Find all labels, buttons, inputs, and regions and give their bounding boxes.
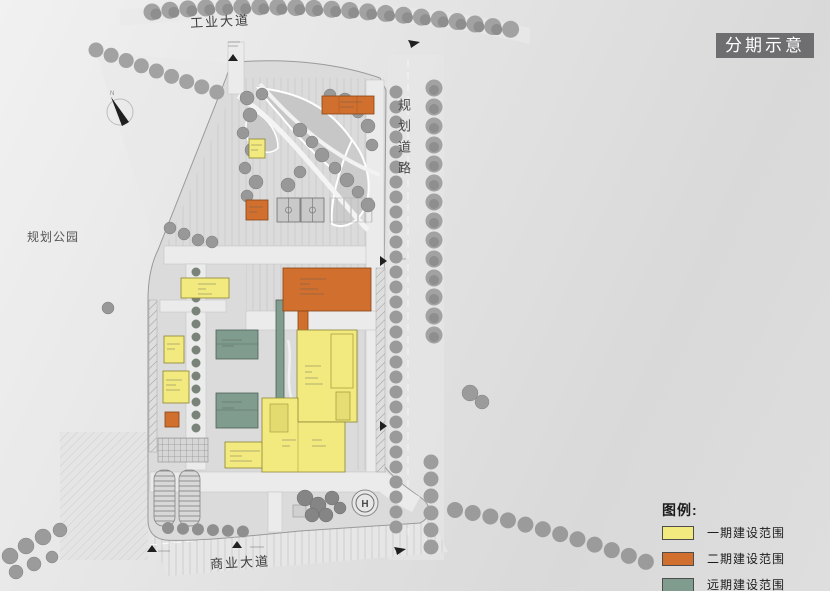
phase3-label: 远期建设范围 <box>707 576 785 591</box>
parking-lot <box>154 438 208 526</box>
plaza-pad <box>293 505 306 517</box>
phase1-label: 一期建设范围 <box>707 524 785 541</box>
phase2-main-block <box>283 268 371 311</box>
west-area-label: 规划公园 <box>27 228 79 245</box>
site-plan-page: H N 工业大道 规划道路 规划公园 商业大道 分期示意 图例: 一期建设范围 … <box>0 0 830 591</box>
phase1-small-west-2 <box>163 371 189 403</box>
south-road-label: 商业大道 <box>210 550 271 572</box>
east-road-label: 规划道路 <box>394 98 413 182</box>
phase2-dormitory-north <box>322 96 374 114</box>
legend-item-phase3: 远期建设范围 <box>662 576 814 591</box>
phase1-small-west-1 <box>164 336 184 363</box>
phase1-bar-west <box>181 278 229 298</box>
phase3-slab-north <box>216 330 258 359</box>
legend: 图例: 一期建设范围 二期建设范围 远期建设范围 <box>654 500 814 591</box>
north-arrow-label: N <box>110 91 114 97</box>
legend-title: 图例: <box>662 500 814 520</box>
phase2-swatch <box>662 552 694 566</box>
phase1-small-north <box>249 139 265 158</box>
street-parking-strip-east <box>376 268 385 472</box>
legend-item-phase2: 二期建设范围 <box>662 550 814 567</box>
phase2-link <box>298 311 308 331</box>
street-parking-strip-west <box>149 300 157 452</box>
north-road-label: 工业大道 <box>190 9 251 31</box>
phase1-swatch <box>662 526 694 540</box>
phase2-building-mid <box>246 200 268 220</box>
helipad: H <box>352 490 378 516</box>
drawing-title-badge: 分期示意 <box>716 33 814 58</box>
helipad-label: H <box>361 499 368 510</box>
phase3-slab-south <box>216 393 258 428</box>
phase3-swatch <box>662 578 694 591</box>
phase2-label: 二期建设范围 <box>707 550 785 567</box>
tree-row-parking <box>168 528 255 532</box>
legend-item-phase1: 一期建设范围 <box>662 524 814 541</box>
phase2-small-west <box>165 412 179 427</box>
